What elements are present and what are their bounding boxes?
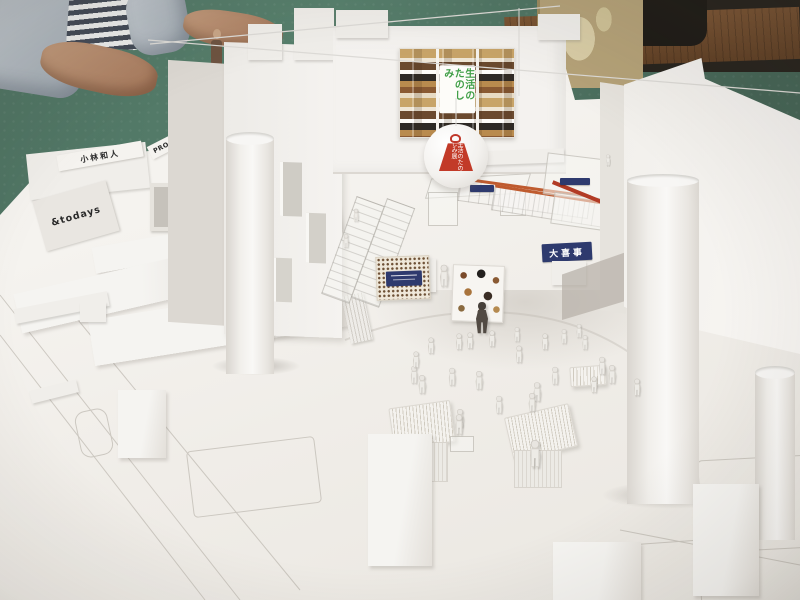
model-wires <box>0 0 800 600</box>
photo-architectural-model: 小林和人 PROOF OF GILD &todays 生活のたのしみ 大喜事 <box>0 0 800 600</box>
